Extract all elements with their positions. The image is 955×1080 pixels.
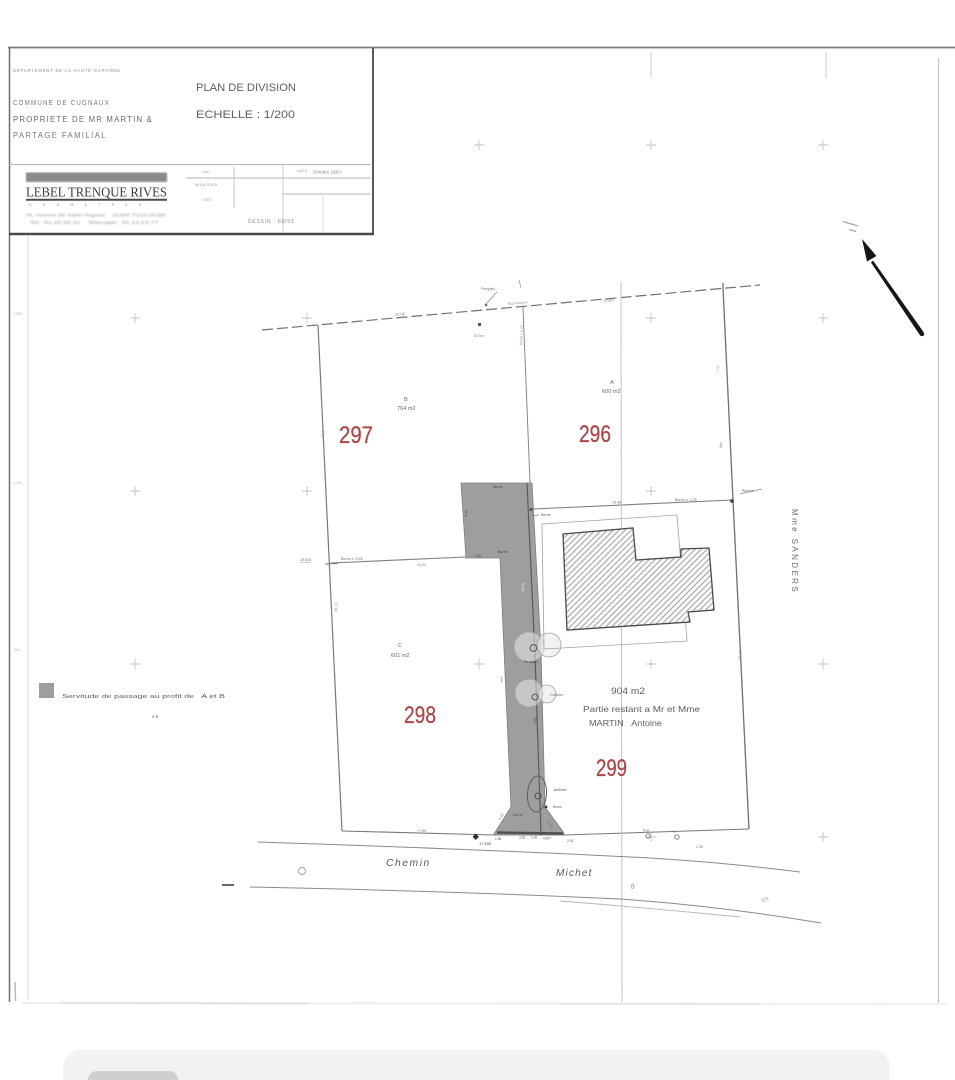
svg-text:]: ] [501, 677, 503, 683]
svg-text:Peuplier: Peuplier [524, 660, 539, 664]
svg-text:P.82: P.82 [643, 829, 650, 833]
svg-text:DESSIN : 60/93: DESSIN : 60/93 [248, 219, 295, 225]
svg-text:904 m2: 904 m2 [611, 686, 645, 697]
svg-text:23.48: 23.48 [612, 501, 621, 505]
svg-text:PARTAGE FAMILIAL: PARTAGE FAMILIAL [13, 131, 107, 140]
svg-text:2.04: 2.04 [567, 839, 573, 843]
svg-text:B: B [673, 830, 676, 834]
svg-text:B: B [404, 397, 408, 403]
svg-text:17.500: 17.500 [479, 841, 492, 846]
svg-text:78, Avenue de Saint Hugues: 78, Avenue de Saint Hugues 31400 TOULOUS… [25, 213, 166, 218]
svg-text:1.98: 1.98 [495, 837, 501, 841]
svg-text:Peuplier: Peuplier [481, 287, 496, 291]
svg-text:Borne: Borne [513, 813, 523, 817]
svg-text:A: A [610, 380, 614, 386]
svg-text:Borne h 0.25: Borne h 0.25 [341, 557, 363, 561]
svg-text:764 m2: 764 m2 [397, 406, 416, 412]
svg-text:Michet: Michet [556, 868, 593, 879]
svg-text:s 6: s 6 [152, 714, 159, 720]
svg-text:23.98: 23.98 [395, 311, 406, 317]
svg-text:COMMUNE DE CUGNAUX: COMMUNE DE CUGNAUX [13, 98, 110, 107]
svg-text:2.08: 2.08 [696, 845, 703, 849]
svg-text:visa.l: visa.l [201, 169, 210, 174]
svg-text:ECHELLE : 1/200: ECHELLE : 1/200 [196, 109, 295, 121]
svg-text:C: C [398, 643, 402, 649]
svg-text:Mur: Mur [719, 441, 723, 448]
svg-text:G E O M E T R E S: G E O M E T R E S [29, 203, 146, 207]
svg-text:DATE: DATE [297, 168, 308, 173]
svg-text:4.607: 4.607 [543, 837, 551, 841]
svg-text:PLAN DE DIVISION: PLAN DE DIVISION [196, 82, 296, 94]
svg-text:MARTIN Antoine: MARTIN Antoine [589, 718, 662, 728]
svg-text:LEBEL TRENQUE RIVES: LEBEL TRENQUE RIVES [26, 185, 167, 200]
svg-text:Partie restant a Mr et Mm: Partie restant a Mr et Mme [583, 705, 701, 714]
svg-text:26.03: 26.03 [738, 650, 743, 660]
svg-text:299: 299 [596, 755, 627, 782]
svg-text:2.640: 2.640 [604, 297, 615, 303]
svg-text:600: 600 [14, 648, 20, 652]
svg-text:Mur mitoyen: Mur mitoyen [508, 300, 528, 306]
svg-text:Octobre 1993: Octobre 1993 [313, 170, 341, 175]
svg-text:10.75: 10.75 [521, 583, 525, 592]
svg-text:Chemin: Chemin [386, 858, 431, 869]
svg-text:PROPRIETE DE MR MARTIN &: PROPRIETE DE MR MARTIN & [13, 115, 153, 124]
svg-text:MIS A JOUR: MIS A JOUR [195, 182, 218, 187]
svg-text:Borne: Borne [553, 805, 562, 809]
svg-text:Borne h 0.25: Borne h 0.25 [675, 498, 697, 502]
svg-text:3.18: 3.18 [519, 836, 525, 840]
svg-text:298: 298 [404, 702, 436, 729]
svg-text:19.025: 19.025 [300, 558, 311, 562]
svg-text:Borne: Borne [498, 550, 508, 554]
svg-text:Servitude de passage au pr: Servitude de passage au profit de A et B [62, 694, 226, 700]
svg-text:28.0: 28.0 [321, 430, 325, 438]
svg-text:1.100: 1.100 [13, 481, 22, 485]
svg-text:34.00: 34.00 [417, 563, 426, 567]
svg-text:+7.39: +7.39 [417, 829, 426, 833]
svg-text:26.10: 26.10 [334, 602, 338, 612]
svg-text:6.08: 6.08 [464, 510, 469, 517]
svg-text:Cerisier: Cerisier [550, 693, 564, 697]
svg-text:1.500: 1.500 [13, 312, 22, 316]
svg-text:Borne s 0.23: Borne s 0.23 [519, 325, 524, 345]
svg-text:50 6m: 50 6m [474, 334, 484, 338]
svg-text:Mme SANDERS: Mme SANDERS [790, 509, 799, 594]
svg-text:Borne: Borne [541, 513, 551, 517]
svg-text:DEPARTEMENT DE LA HAUTE GA: DEPARTEMENT DE LA HAUTE GARONNE [13, 68, 121, 73]
svg-text:296: 296 [579, 421, 611, 448]
svg-text:601 m2: 601 m2 [391, 653, 410, 659]
svg-text:115: 115 [761, 896, 770, 903]
svg-text:1.36: 1.36 [531, 836, 537, 840]
svg-text:4.08: 4.08 [474, 554, 481, 558]
svg-text:ò: ò [629, 881, 635, 891]
svg-text:DES: DES [203, 197, 212, 202]
svg-text:297: 297 [339, 422, 373, 449]
svg-text:Borne: Borne [493, 485, 503, 489]
svg-text:600 m2: 600 m2 [602, 389, 621, 395]
svg-text:Tel : 61.25.55.41 Telecopie: Tel : 61.25.55.41 Telecopie : 61.24.13.7… [30, 220, 159, 225]
svg-text:Jardinier: Jardinier [553, 788, 568, 792]
svg-text:7.07: 7.07 [716, 364, 720, 372]
svg-text:1.02: 1.02 [533, 717, 537, 724]
